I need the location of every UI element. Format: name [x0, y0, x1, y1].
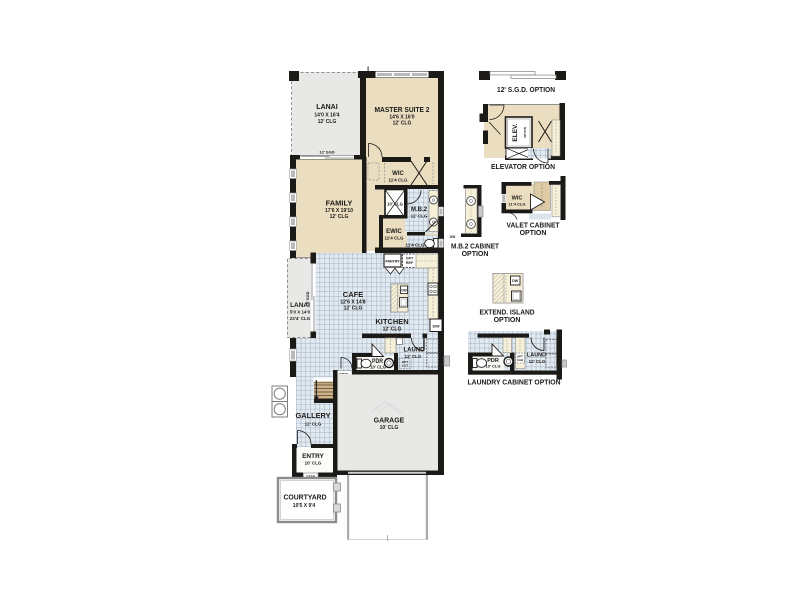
- svg-text:10' CLG: 10' CLG: [370, 365, 386, 370]
- svg-text:LAUND: LAUND: [527, 353, 546, 359]
- svg-text:DW: DW: [401, 288, 406, 292]
- svg-text:12' CLG: 12' CLG: [393, 121, 412, 127]
- svg-text:EWIC: EWIC: [386, 229, 402, 235]
- svg-text:EXTEND. ISLAND: EXTEND. ISLAND: [480, 310, 535, 317]
- svg-text:REF: REF: [406, 261, 414, 265]
- svg-text:12' CLG: 12' CLG: [330, 214, 349, 220]
- svg-text:ELEV.: ELEV.: [512, 123, 519, 141]
- svg-text:12' CLG: 12' CLG: [318, 119, 337, 125]
- svg-text:5'0 X 14'0: 5'0 X 14'0: [290, 310, 311, 315]
- svg-text:ENTRY: ENTRY: [302, 453, 324, 460]
- svg-text:14'0 X 16'4: 14'0 X 16'4: [314, 113, 339, 119]
- svg-text:D/W: D/W: [433, 325, 441, 329]
- svg-text:OPTION: OPTION: [523, 127, 527, 138]
- svg-text:10' CLG: 10' CLG: [387, 202, 403, 207]
- svg-text:COURTYARD: COURTYARD: [284, 495, 327, 502]
- svg-text:OPTION: OPTION: [462, 251, 489, 258]
- svg-text:CAFE: CAFE: [343, 290, 363, 299]
- svg-text:11'4 CLG: 11'4 CLG: [384, 236, 404, 241]
- svg-text:FAMILY: FAMILY: [326, 199, 353, 208]
- svg-text:10'5 X 9'4: 10'5 X 9'4: [293, 503, 316, 509]
- svg-text:LANAI: LANAI: [316, 104, 337, 111]
- svg-text:12' SGD: 12' SGD: [319, 150, 334, 155]
- svg-text:12' CLG: 12' CLG: [305, 422, 322, 427]
- svg-text:MASTER SUITE 2: MASTER SUITE 2: [375, 105, 430, 114]
- svg-text:DW: DW: [450, 235, 456, 239]
- svg-text:M.B.2 CABINET: M.B.2 CABINET: [451, 244, 500, 251]
- svg-text:KITCHEN: KITCHEN: [375, 317, 408, 326]
- svg-text:12' CLG: 12' CLG: [344, 306, 363, 312]
- svg-text:M.B.2: M.B.2: [411, 207, 428, 213]
- svg-text:12' CLG: 12' CLG: [411, 214, 428, 219]
- svg-text:12' CLG: 12' CLG: [405, 354, 422, 359]
- svg-text:11'4 CLG: 11'4 CLG: [388, 178, 408, 183]
- svg-text:OPT: OPT: [406, 257, 414, 261]
- svg-text:C/LT: C/LT: [402, 364, 409, 368]
- svg-text:ELEVATOR OPTION: ELEVATOR OPTION: [491, 164, 555, 171]
- svg-text:12' S.G.D. OPTION: 12' S.G.D. OPTION: [497, 87, 555, 94]
- svg-text:OPTION: OPTION: [494, 317, 521, 324]
- svg-text:PANTRY: PANTRY: [385, 260, 400, 264]
- svg-text:10' CLG: 10' CLG: [380, 425, 399, 431]
- svg-text:CAB: CAB: [517, 358, 523, 362]
- svg-text:10' CLG: 10' CLG: [486, 364, 501, 369]
- svg-text:10' CLG: 10' CLG: [305, 461, 322, 466]
- svg-text:DW: DW: [512, 279, 519, 283]
- svg-text:WIC: WIC: [392, 171, 404, 177]
- svg-text:OPTION: OPTION: [520, 230, 547, 237]
- svg-text:9' SGD: 9' SGD: [305, 291, 310, 304]
- svg-text:LAUNDRY CABINET OPTION: LAUNDRY CABINET OPTION: [468, 380, 561, 387]
- svg-text:GARAGE: GARAGE: [374, 418, 405, 425]
- svg-text:23'4' CLG: 23'4' CLG: [290, 316, 311, 321]
- svg-text:LAUND: LAUND: [404, 348, 426, 354]
- svg-text:11'4 CLG: 11'4 CLG: [405, 243, 425, 248]
- svg-text:12' CLG: 12' CLG: [383, 327, 402, 333]
- svg-text:12' CLG: 12' CLG: [529, 359, 546, 364]
- svg-text:GALLERY: GALLERY: [296, 413, 331, 420]
- svg-text:11'4 CLG: 11'4 CLG: [509, 202, 526, 207]
- svg-text:VALET CABINET: VALET CABINET: [507, 223, 561, 230]
